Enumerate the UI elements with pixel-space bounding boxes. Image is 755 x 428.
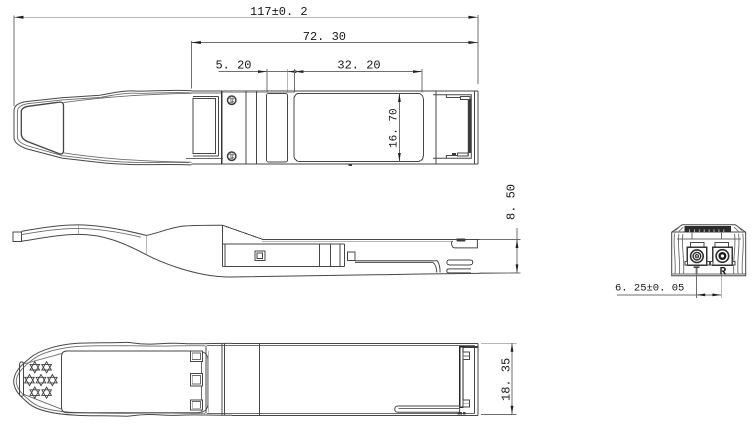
svg-text:72. 30: 72. 30 bbox=[303, 30, 346, 44]
svg-text:R: R bbox=[720, 267, 727, 279]
svg-text:5. 20: 5. 20 bbox=[215, 58, 251, 72]
svg-text:8. 50: 8. 50 bbox=[505, 184, 519, 220]
svg-text:16. 70: 16. 70 bbox=[389, 108, 401, 148]
svg-text:6. 25±0. 05: 6. 25±0. 05 bbox=[615, 283, 684, 295]
svg-text:18. 35: 18. 35 bbox=[500, 358, 514, 401]
svg-text:32. 20: 32. 20 bbox=[337, 58, 380, 72]
